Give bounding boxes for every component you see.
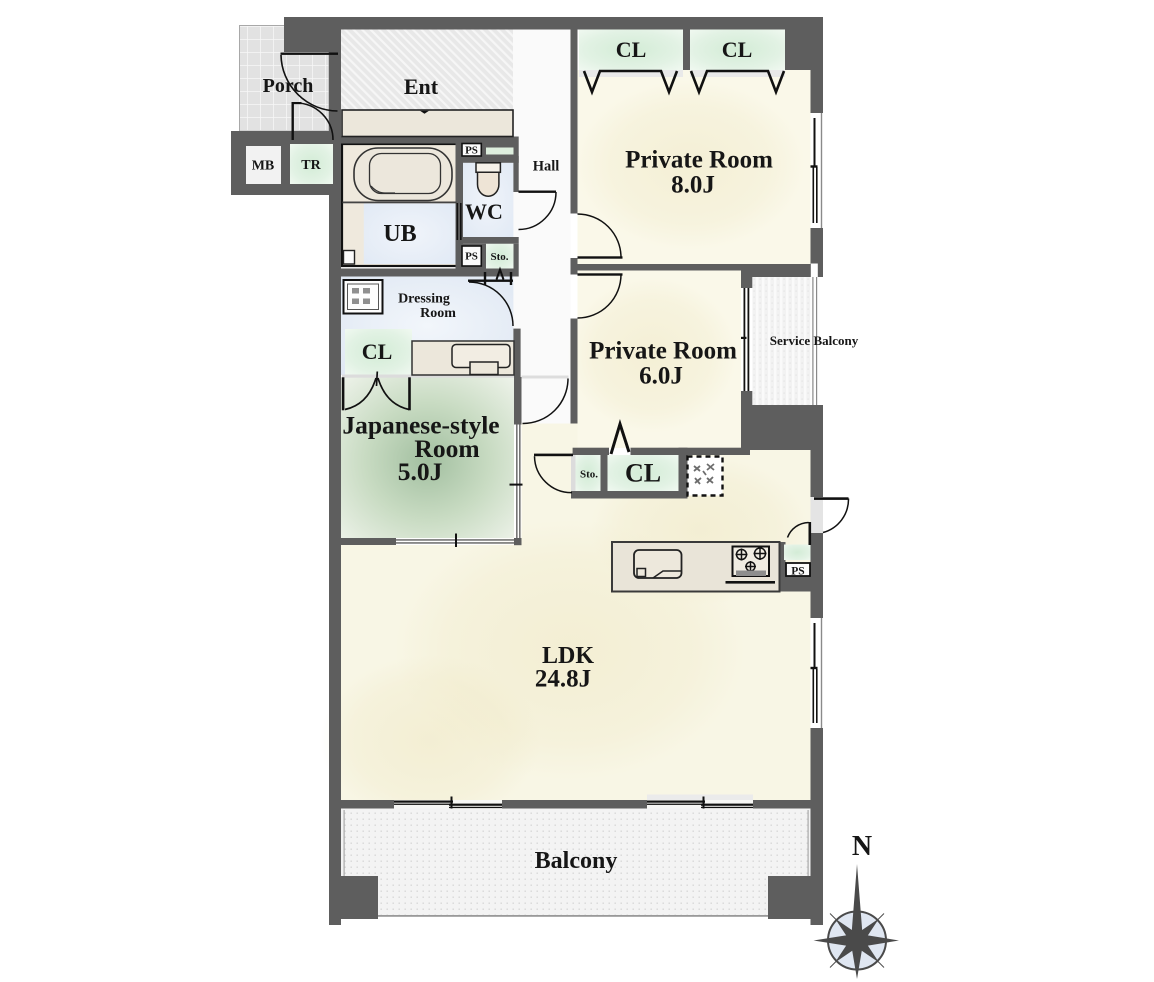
svg-text:8.0J: 8.0J [671,172,715,199]
svg-text:WC: WC [465,199,503,224]
svg-text:Sto.: Sto. [580,469,598,481]
svg-text:N: N [852,831,872,862]
svg-text:Private Room: Private Room [589,338,737,365]
svg-text:Sto.: Sto. [490,251,508,263]
svg-text:5.0J: 5.0J [398,457,443,486]
svg-text:Ent: Ent [404,74,439,99]
svg-text:Dressing: Dressing [398,292,450,307]
svg-text:UB: UB [383,221,416,247]
svg-text:CL: CL [722,37,753,62]
svg-text:TR: TR [301,158,321,173]
svg-text:Service Balcony: Service Balcony [770,333,859,348]
svg-text:Balcony: Balcony [535,848,618,874]
svg-text:Private Room: Private Room [625,147,773,174]
svg-text:Porch: Porch [263,75,314,97]
svg-text:CL: CL [362,339,393,364]
svg-text:Room: Room [420,306,456,321]
svg-text:MB: MB [252,159,275,174]
svg-text:Hall: Hall [533,159,560,175]
svg-text:PS: PS [791,566,804,578]
svg-text:24.8J: 24.8J [535,666,591,693]
svg-text:CL: CL [616,37,647,62]
svg-text:CL: CL [625,459,661,488]
svg-text:PS: PS [465,145,478,157]
svg-text:PS: PS [465,251,478,263]
svg-text:6.0J: 6.0J [639,363,683,390]
